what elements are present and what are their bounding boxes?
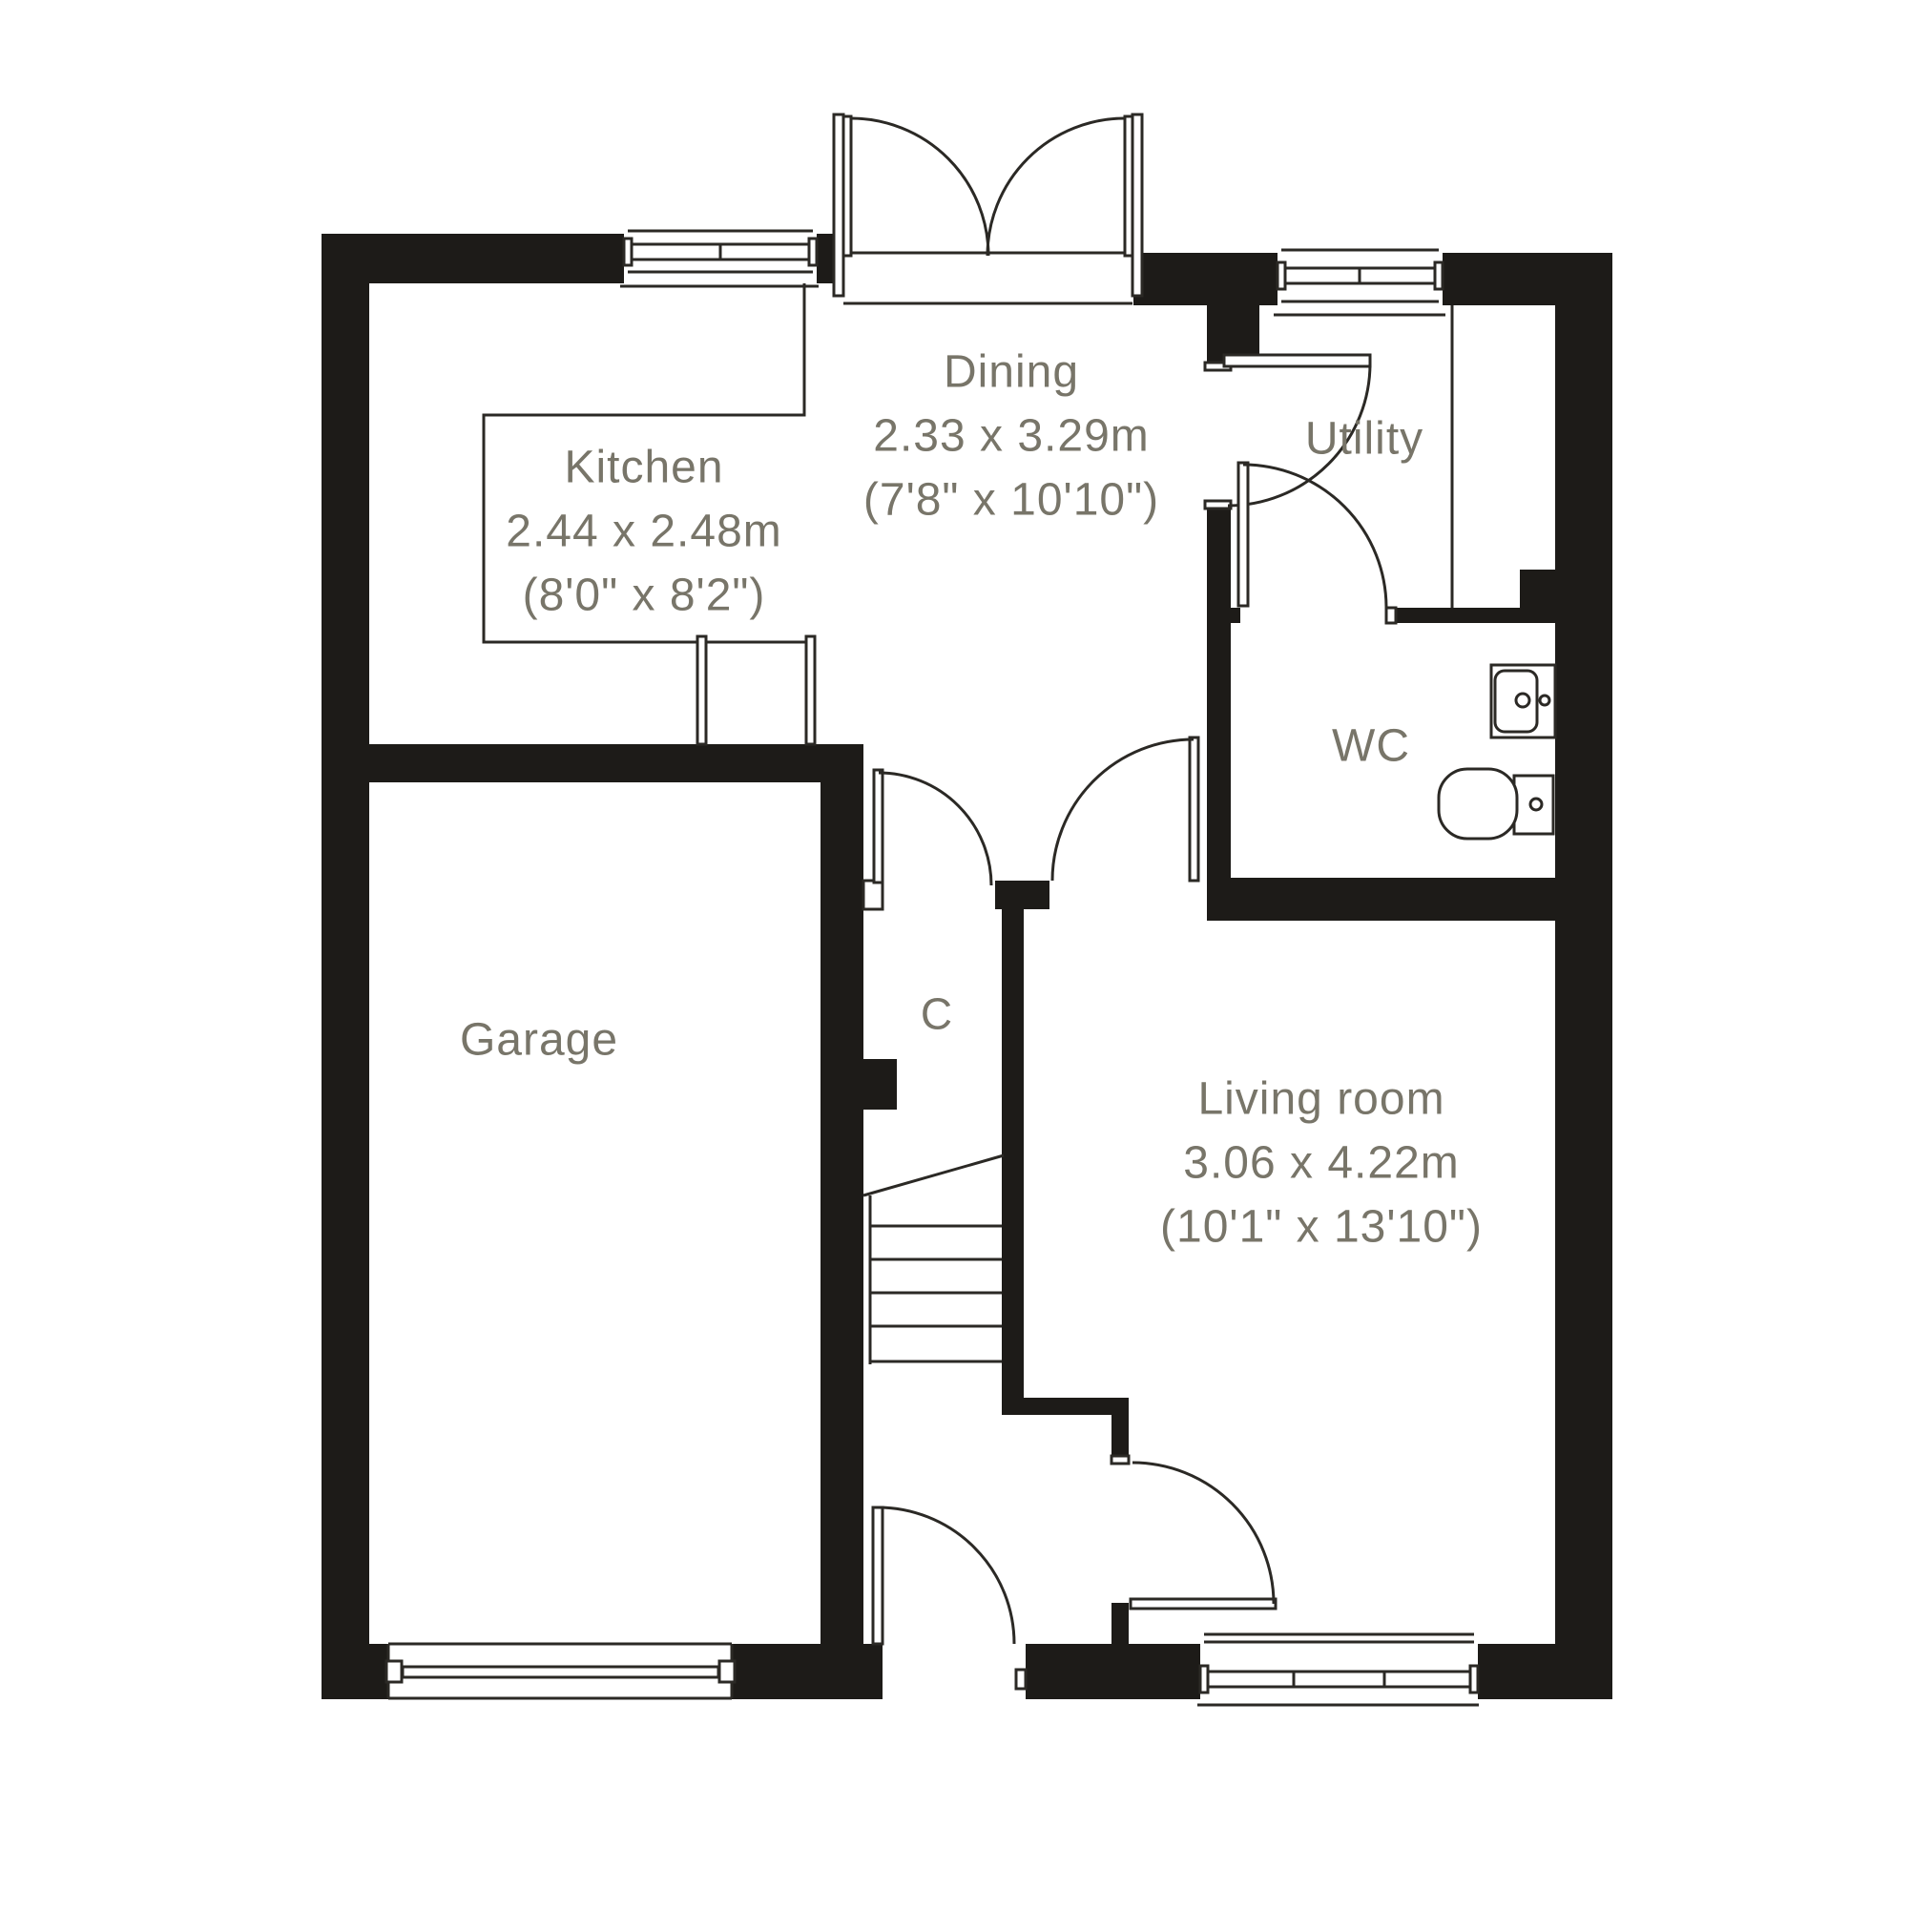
- wall-dining-right: [1207, 509, 1231, 881]
- stairs-break-line: [863, 1155, 1004, 1195]
- wall-wc-bottom: [1207, 878, 1555, 921]
- kitchen-imperial: (8'0" x 8'2"): [506, 564, 782, 628]
- dining-imperial: (7'8" x 10'10"): [863, 468, 1159, 532]
- living-room-name: Living room: [1160, 1068, 1483, 1132]
- wc-label: WC: [1332, 715, 1410, 779]
- wall-garage-top: [369, 744, 863, 782]
- garage-door: [386, 1640, 735, 1703]
- wall-right-block: [1520, 570, 1555, 623]
- wall-left: [322, 234, 369, 1699]
- french-doors: [834, 114, 1142, 303]
- floor-plan-drawing: [0, 0, 1932, 1932]
- wall-cupboard-stub: [863, 1059, 897, 1110]
- wall-living-stub-lower: [1111, 1603, 1129, 1644]
- wc-name: WC: [1332, 715, 1410, 779]
- passage-jamb-left: [697, 636, 706, 744]
- wall-garage-right: [821, 782, 863, 1644]
- utility-label: Utility: [1305, 407, 1423, 471]
- kitchen-label: Kitchen 2.44 x 2.48m (8'0" x 8'2"): [506, 436, 782, 628]
- front-door: [873, 1507, 1026, 1699]
- kitchen-name: Kitchen: [506, 436, 782, 500]
- utility-window: [1274, 246, 1445, 317]
- cupboard-name: C: [921, 983, 953, 1047]
- utility-name: Utility: [1305, 407, 1423, 471]
- stairs: [863, 1155, 1004, 1364]
- wall-living-stub-upper: [1111, 1415, 1129, 1458]
- dining-metric: 2.33 x 3.29m: [863, 405, 1159, 468]
- floor-plan: Kitchen 2.44 x 2.48m (8'0" x 8'2") Dinin…: [0, 0, 1932, 1932]
- garage-label: Garage: [460, 1008, 618, 1072]
- cupboard-label: C: [921, 983, 953, 1047]
- wall-hall-stub: [995, 881, 1049, 909]
- hall-left-door: [863, 770, 991, 909]
- dining-name: Dining: [863, 341, 1159, 405]
- kitchen-metric: 2.44 x 2.48m: [506, 500, 782, 564]
- wall-wc-top: [1396, 608, 1520, 623]
- wall-hall-right: [1002, 909, 1024, 1398]
- wc-door: [1238, 463, 1396, 623]
- wall-stairs-bottom: [1002, 1398, 1129, 1415]
- garage-name: Garage: [460, 1008, 618, 1072]
- wall-right: [1555, 253, 1612, 1699]
- kitchen-window: [620, 227, 819, 294]
- living-room-imperial: (10'1" x 13'10"): [1160, 1195, 1483, 1259]
- living-room-metric: 3.06 x 4.22m: [1160, 1132, 1483, 1195]
- living-room-label: Living room 3.06 x 4.22m (10'1" x 13'10"…: [1160, 1068, 1483, 1259]
- wc-sink: [1491, 665, 1555, 737]
- wc-toilet: [1439, 769, 1553, 839]
- hall-right-door: [1052, 737, 1198, 881]
- passage-jamb-right: [806, 636, 815, 744]
- living-room-window: [1197, 1630, 1479, 1710]
- living-room-door: [1111, 1456, 1276, 1609]
- wall-wc-top-corner: [1207, 608, 1240, 623]
- dining-label: Dining 2.33 x 3.29m (7'8" x 10'10"): [863, 341, 1159, 532]
